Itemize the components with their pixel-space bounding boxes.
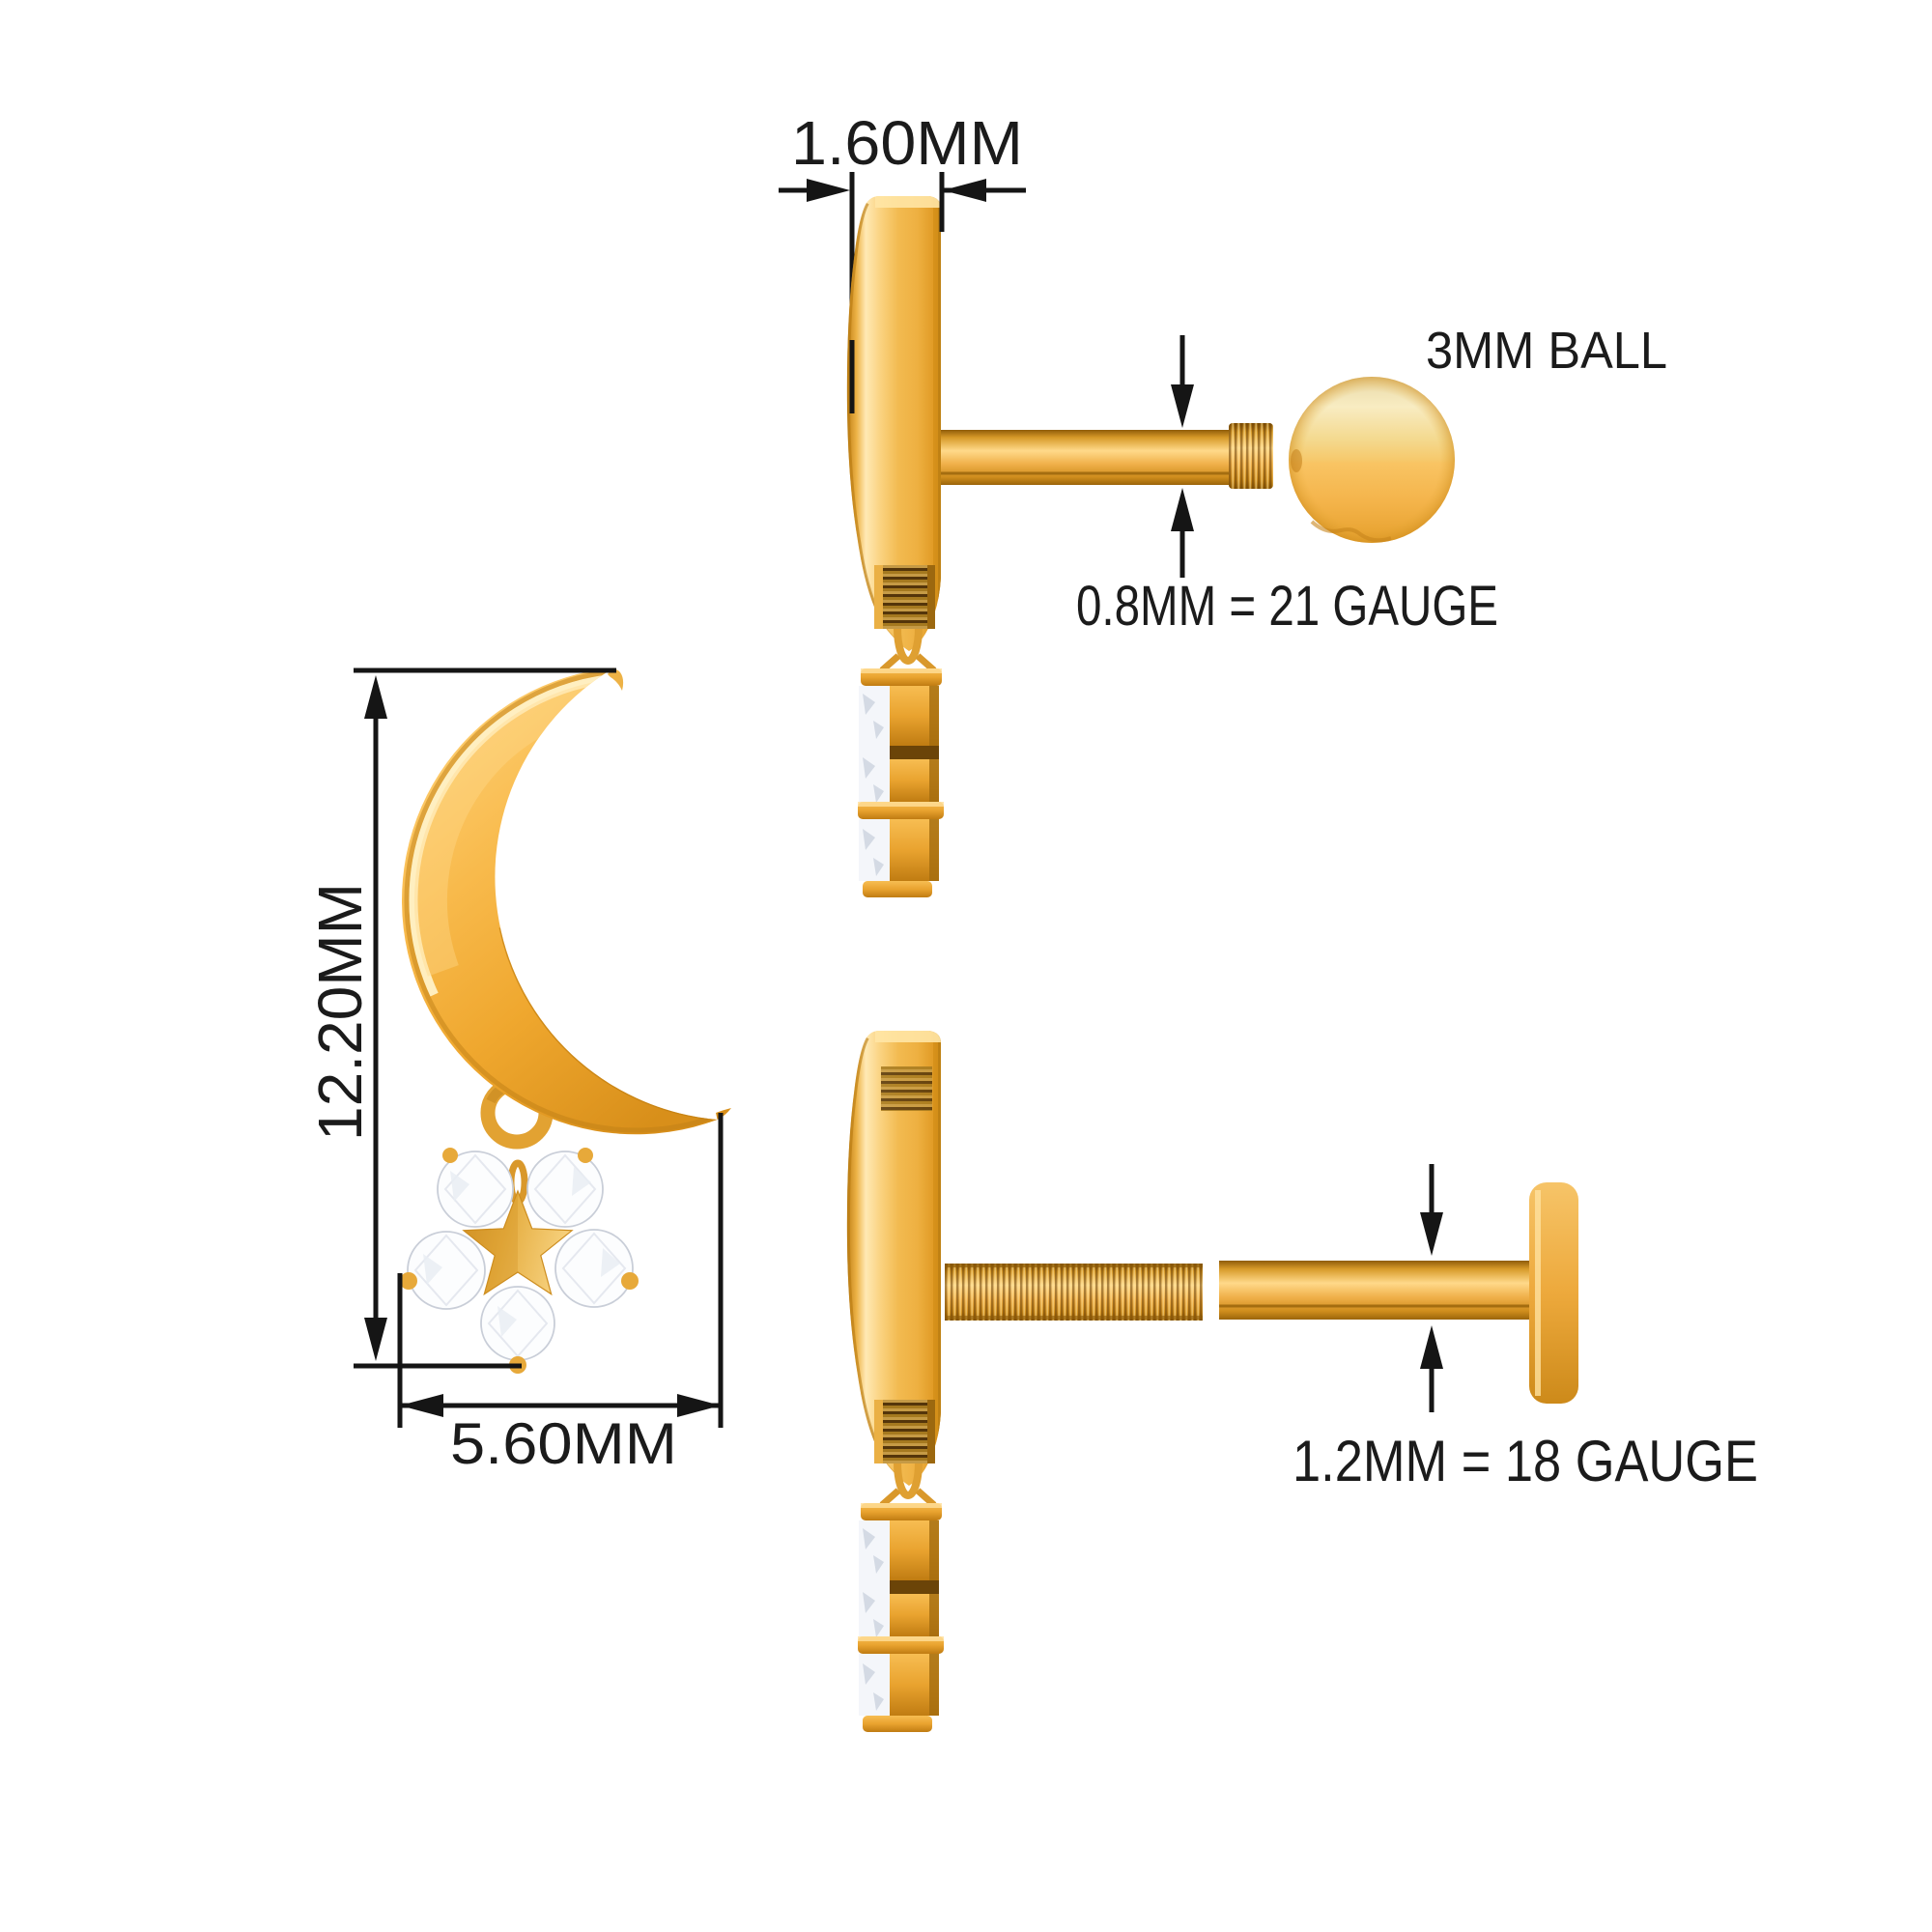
svg-text:3MM BALL: 3MM BALL xyxy=(1426,322,1667,380)
svg-text:1.2MM = 18 GAUGE: 1.2MM = 18 GAUGE xyxy=(1293,1429,1758,1493)
svg-text:0.8MM = 21 GAUGE: 0.8MM = 21 GAUGE xyxy=(1076,575,1498,638)
svg-text:12.20MM: 12.20MM xyxy=(305,883,375,1141)
svg-text:5.60MM: 5.60MM xyxy=(450,1411,677,1476)
svg-text:1.60MM: 1.60MM xyxy=(791,108,1023,178)
